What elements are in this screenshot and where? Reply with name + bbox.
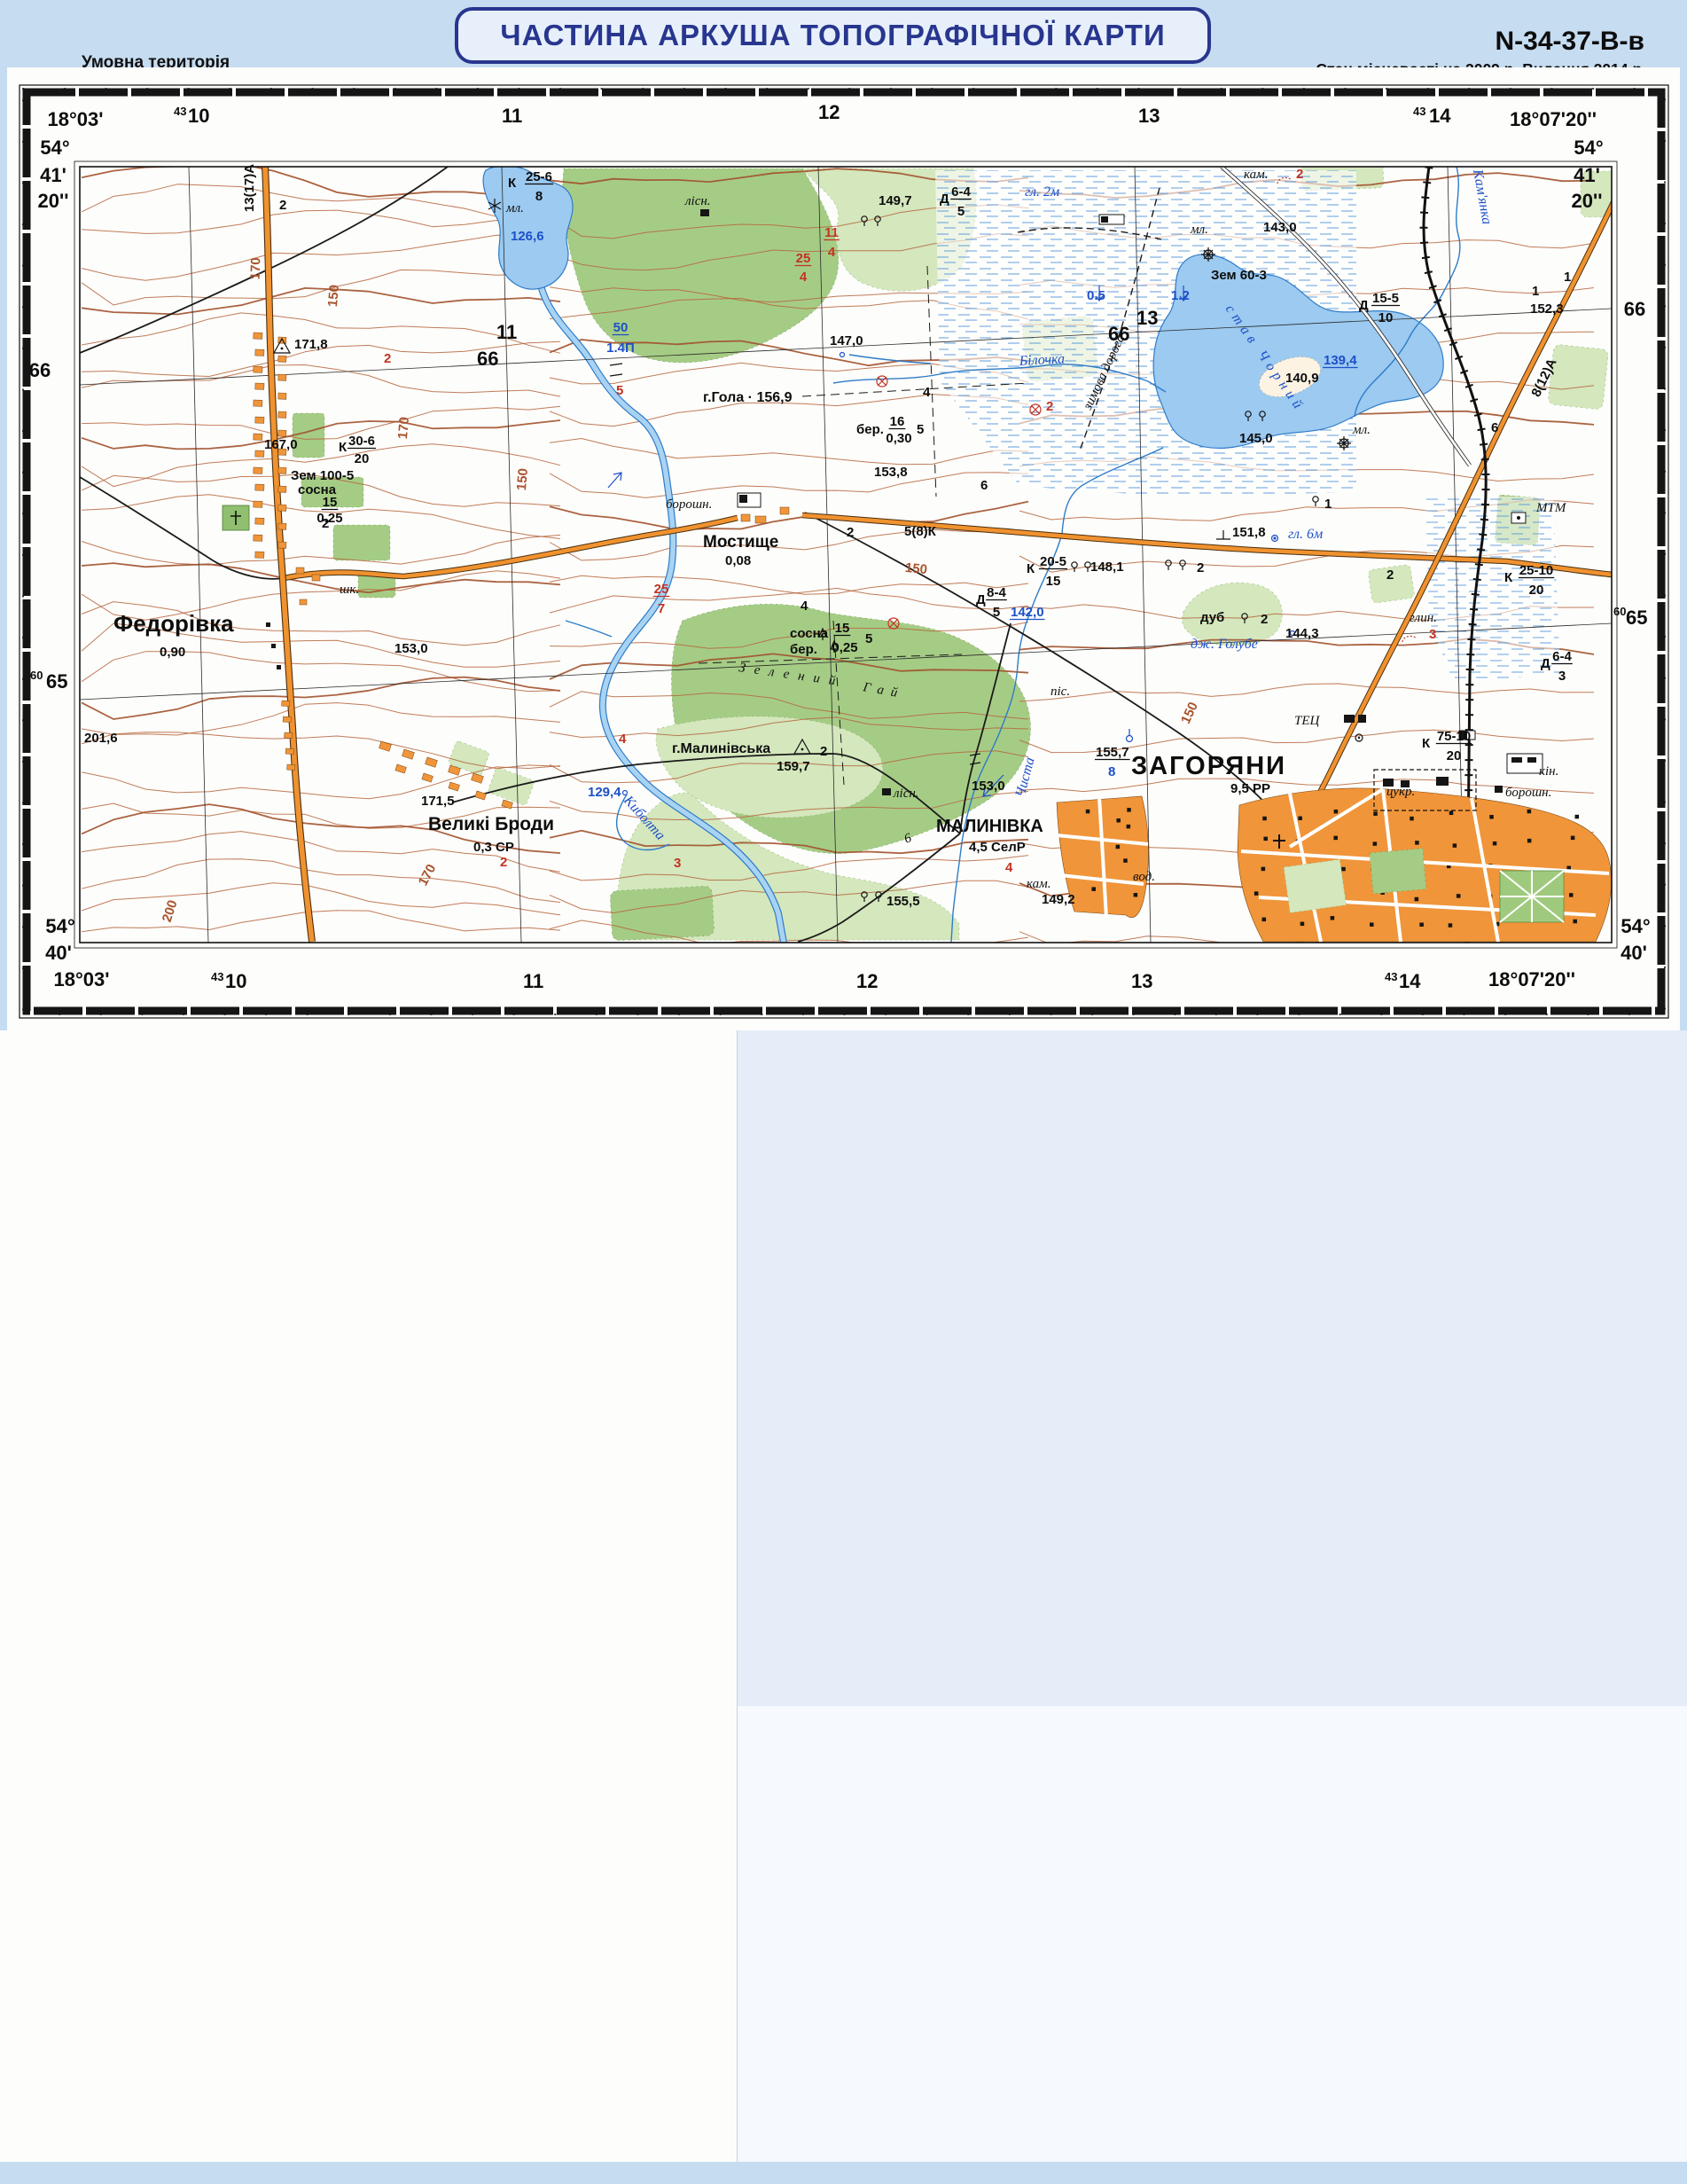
map-label: гл. 2м <box>1025 184 1059 200</box>
map-label: К <box>339 440 348 455</box>
building <box>1333 836 1338 841</box>
topographic-map-sheet: 18°03'54°41'20''18°07'20''54°41'20''6660… <box>0 0 1687 1037</box>
map-label: 0,3 СР <box>473 840 514 855</box>
stable <box>1507 754 1543 773</box>
map-label: 15 <box>1046 574 1061 589</box>
building <box>1410 817 1414 821</box>
map-label: вод. <box>1133 870 1155 884</box>
building <box>255 349 264 356</box>
map-label: 2 <box>500 855 507 870</box>
map-label: 1.4П <box>606 341 635 356</box>
map-label: 0,25 <box>832 640 857 655</box>
building <box>282 701 290 707</box>
map-label: 153,8 <box>874 465 908 480</box>
building <box>1091 887 1096 891</box>
map-label: 126,6 <box>511 229 544 244</box>
building <box>1569 893 1574 897</box>
map-label: 25 <box>654 582 669 597</box>
corner-longitude-top-left: 18°03' <box>48 108 104 130</box>
map-label: 139,4 <box>1324 353 1357 368</box>
map-label: 4 <box>828 245 836 260</box>
map-label: борошн. <box>666 497 712 512</box>
map-label: 20-5 <box>1040 554 1066 569</box>
corner-latitude-bottom-left: 54° <box>45 915 74 937</box>
grid-row-left-60: 60 <box>30 669 43 682</box>
building <box>1373 811 1378 816</box>
map-label: 30-6 <box>348 434 375 449</box>
building <box>1493 842 1497 846</box>
building <box>255 484 264 490</box>
map-label: 5 <box>616 383 623 398</box>
height-point: 171,8 <box>294 337 328 352</box>
map-label: 5 <box>865 631 872 646</box>
contour-label: 170 <box>248 257 264 280</box>
contour-label: 170 <box>395 416 412 439</box>
building <box>1341 867 1346 872</box>
grid-col-bottom-10: 10 <box>225 970 246 992</box>
river-name-bilochka: Білочка <box>1018 351 1065 369</box>
building <box>278 374 286 380</box>
map-label: 0,08 <box>725 553 751 568</box>
corner-latitude-top-right: 54° <box>1574 137 1603 159</box>
map-label: 4,5 СелР <box>969 840 1026 855</box>
map-label: шк. <box>340 583 359 597</box>
map-label: бер. <box>790 642 817 657</box>
corner-longitude-top-right: 18°07'20'' <box>1510 108 1597 130</box>
map-label: 3 <box>1558 669 1566 684</box>
map-label: 50 <box>613 320 629 335</box>
building <box>285 748 293 755</box>
map-label: 2 <box>279 198 286 213</box>
map-label: 25-6 <box>526 169 552 184</box>
map-label: 40' <box>1621 942 1647 964</box>
grid-col-bottom-13: 13 <box>1131 970 1152 992</box>
building <box>1489 815 1494 819</box>
building <box>1370 922 1374 927</box>
map-label: 0,90 <box>160 645 185 660</box>
road-number: 13(17)А <box>242 164 257 212</box>
building <box>1373 842 1378 846</box>
map-label: 8 <box>1108 764 1115 779</box>
building <box>254 434 262 440</box>
map-label: 5 <box>917 422 924 437</box>
map-label: Зем 100-5 <box>291 468 354 483</box>
corner-longitude-bottom-left: 18°03' <box>54 968 110 990</box>
map-label: 144,3 <box>1285 626 1319 641</box>
map-label: 25 <box>796 251 811 266</box>
building <box>1457 894 1461 898</box>
map-label: 40' <box>45 942 72 964</box>
building <box>1571 836 1575 841</box>
map-label: 2 <box>1197 560 1204 575</box>
village-name-mostysche: Мостище <box>703 533 778 552</box>
spring-name-holube: дж. Голубе <box>1191 637 1258 652</box>
building <box>278 430 286 436</box>
map-label: К <box>1422 736 1431 751</box>
map-label: Д <box>976 592 986 607</box>
building <box>1573 920 1577 924</box>
building <box>278 467 286 474</box>
map-label: 6 <box>980 478 988 493</box>
map-label: дуб <box>1200 610 1224 625</box>
map-label: 43 <box>211 970 223 983</box>
building <box>254 366 262 372</box>
grid-col-bottom-12: 12 <box>856 970 878 992</box>
building <box>278 393 286 399</box>
building <box>312 575 320 581</box>
building <box>1099 215 1124 224</box>
map-label: 2 <box>847 525 854 540</box>
building <box>277 665 281 669</box>
forester-building <box>882 788 891 795</box>
mtm-building <box>1511 513 1526 523</box>
map-label: 147,0 <box>830 333 863 348</box>
map-label: 15-5 <box>1372 291 1399 306</box>
map-label: 148,1 <box>1090 560 1124 575</box>
building <box>278 356 286 362</box>
map-label: 1.2 <box>1171 288 1190 303</box>
building <box>1298 817 1302 821</box>
building <box>283 716 291 723</box>
building <box>278 542 286 548</box>
map-label: 167,0 <box>264 437 298 452</box>
map-label: Д <box>940 192 949 207</box>
map-label: 143,0 <box>1263 220 1297 235</box>
map-label: 5 <box>993 605 1000 620</box>
map-label: К <box>1504 570 1513 585</box>
building <box>1254 891 1259 896</box>
map-label: 6 <box>1491 420 1498 435</box>
map-label: 142,0 <box>1011 605 1044 620</box>
building <box>278 505 286 511</box>
dam-label: Зем 60-3 <box>1211 268 1267 283</box>
map-label: 2 <box>1386 568 1394 583</box>
map-label: кін. <box>1539 764 1558 779</box>
grid-col-top-14: 14 <box>1429 105 1451 127</box>
building <box>254 400 262 406</box>
building <box>255 383 264 389</box>
building <box>300 599 307 605</box>
map-label: 149,7 <box>879 193 912 208</box>
map-label: 16 <box>890 414 905 429</box>
map-label: 6-4 <box>951 184 971 200</box>
map-label: 151,8 <box>1232 525 1266 540</box>
map-label: 41' <box>40 164 66 186</box>
map-label: Д <box>1359 298 1369 313</box>
corner-latitude-bottom-right: 54° <box>1621 915 1650 937</box>
contour-label: 150 <box>325 284 342 307</box>
building <box>278 486 286 492</box>
map-label: 75-10 <box>1437 729 1471 744</box>
grid-col-top-12: 12 <box>818 101 840 123</box>
map-label: 2 <box>384 351 391 366</box>
village-name-velyki-brody: Великі Броди <box>428 814 554 834</box>
building <box>1527 810 1532 814</box>
grid-inside-13: 13 <box>1136 307 1158 329</box>
map-label: 7 <box>658 601 665 616</box>
building <box>285 732 293 739</box>
building <box>254 501 262 507</box>
map-label: 20'' <box>38 190 69 212</box>
map-label: 41' <box>1574 164 1600 186</box>
building <box>1449 811 1454 816</box>
map-label: сосна <box>790 626 829 641</box>
grid-col-top-10: 10 <box>188 105 209 127</box>
building <box>254 333 262 339</box>
map-label: борошн. <box>1505 786 1551 800</box>
map-sheet-svg: 18°03'54°41'20''18°07'20''54°41'20''6660… <box>0 0 1687 1037</box>
empty-page-area-right <box>738 1030 1687 1706</box>
corner-latitude-top-left: 54° <box>40 137 69 159</box>
map-label: бер. <box>856 422 884 437</box>
building <box>255 552 264 558</box>
map-label: 43 <box>1385 970 1397 983</box>
map-label: МТМ <box>1535 501 1567 515</box>
map-label: ТЕЦ <box>1294 714 1321 728</box>
building <box>1263 837 1268 842</box>
map-label: 149,2 <box>1042 892 1075 907</box>
map-label: 15 <box>835 621 850 636</box>
map-label: 145,0 <box>1239 431 1273 446</box>
grid-inside-11: 11 <box>496 321 517 343</box>
map-label: 171,5 <box>421 794 455 809</box>
building <box>1116 818 1121 823</box>
building <box>255 518 264 524</box>
town-name-malynivka: МАЛИНІВКА <box>936 817 1043 836</box>
map-label: К <box>508 176 517 191</box>
map-label: 60 <box>1613 605 1626 618</box>
map-label: 1 <box>1564 270 1571 285</box>
map-label: 4 <box>923 385 931 400</box>
map-label: Д <box>1541 656 1550 671</box>
map-label: 15 <box>323 495 338 510</box>
map-label: 3 <box>674 856 681 871</box>
building <box>255 417 264 423</box>
map-label: 2 <box>1261 612 1268 627</box>
map-label: кам. <box>1027 877 1050 891</box>
building <box>1127 825 1131 829</box>
map-label: 4 <box>1005 860 1013 875</box>
map-label: 43 <box>1413 105 1425 118</box>
building <box>1415 897 1419 902</box>
map-label: 3 <box>1429 627 1436 642</box>
map-label: 6-4 <box>1552 649 1572 664</box>
building <box>1123 858 1128 863</box>
town-name-zahoriany: ЗАГОРЯНИ <box>1131 752 1286 780</box>
building <box>1262 817 1267 821</box>
building <box>1262 918 1267 922</box>
height-point: 201,6 <box>84 731 118 746</box>
map-label: 155,7 <box>1096 745 1129 760</box>
map-label: мл. <box>1190 223 1208 237</box>
building <box>1575 815 1580 819</box>
map-label: 1 <box>1532 284 1539 299</box>
building <box>1134 893 1138 897</box>
grid-col-top-13: 13 <box>1138 105 1160 127</box>
map-label: 129,4 <box>588 785 621 800</box>
building <box>1419 922 1424 927</box>
town-park <box>1500 871 1564 922</box>
building <box>271 644 276 648</box>
grid-row-left-65: 65 <box>46 670 67 693</box>
building <box>1449 923 1453 928</box>
scanned-atlas-page: Умовна територія ЧАСТИНА АРКУША ТОПОГРАФ… <box>0 0 1687 2184</box>
map-label: К <box>1027 561 1035 576</box>
grid-col-bottom-14: 14 <box>1399 970 1421 992</box>
contour-label: 150 <box>514 467 531 490</box>
grid-row-left-66: 66 <box>29 359 51 381</box>
village-name-fedorivka: Федорівка <box>113 610 234 637</box>
map-label: 0,30 <box>886 431 911 446</box>
grid-row-right-66: 66 <box>1624 298 1645 320</box>
grid-inside-66: 66 <box>477 348 498 370</box>
building <box>1127 808 1131 812</box>
building <box>296 568 304 574</box>
building <box>278 523 286 529</box>
map-label: 0,25 <box>316 511 342 526</box>
map-label: мл. <box>1352 423 1371 437</box>
grid-row-right-65: 65 <box>1626 607 1647 629</box>
corner-longitude-bottom-right: 18°07'20'' <box>1488 968 1575 990</box>
map-label: 2 <box>820 744 827 759</box>
map-label: 11 <box>824 225 839 240</box>
building <box>255 450 264 457</box>
cemetery <box>223 505 249 530</box>
building <box>287 764 295 771</box>
building <box>1334 810 1339 814</box>
map-label: 20 <box>355 451 370 466</box>
map-label: 155,5 <box>886 894 920 909</box>
map-label: 5 <box>957 204 965 219</box>
building <box>1331 916 1335 920</box>
map-label: лісн. <box>684 194 711 208</box>
road-number: 5(8)К <box>904 524 937 539</box>
map-label: 152,3 <box>1530 301 1564 317</box>
map-label: 159,7 <box>777 759 810 774</box>
map-label: гл. 6м <box>1288 527 1323 542</box>
map-label: 153,0 <box>394 641 428 656</box>
map-label: 20 <box>1447 748 1462 763</box>
building <box>1086 810 1090 814</box>
map-label: цукр. <box>1386 785 1415 799</box>
building <box>254 535 262 541</box>
hill-name-hola: г.Гола · 156,9 <box>703 390 793 405</box>
map-label: 4 <box>801 599 808 614</box>
map-label: 20'' <box>1572 190 1603 212</box>
building <box>1415 841 1419 845</box>
page-bottom-strip <box>0 2162 1687 2184</box>
mill-building <box>1495 786 1503 793</box>
building <box>266 622 270 627</box>
map-label: піс. <box>1050 685 1070 699</box>
building <box>1261 867 1266 872</box>
contour-label: 150 <box>904 560 928 578</box>
map-label: 2 <box>1296 167 1303 182</box>
map-label: 43 <box>174 105 186 118</box>
empty-page-area-lower <box>738 1706 1687 2162</box>
map-label: 4 <box>800 270 808 285</box>
map-label: 25-10 <box>1519 563 1553 578</box>
map-label: глин. <box>1410 611 1437 625</box>
map-label: 0.5 <box>1087 288 1105 303</box>
grid-col-bottom-11: 11 <box>523 970 543 992</box>
map-label: 8-4 <box>987 585 1006 600</box>
map-label: 4 <box>619 732 627 747</box>
building <box>1453 843 1457 848</box>
forester-building <box>700 209 709 216</box>
map-label: 20 <box>1529 583 1544 598</box>
map-label: 2 <box>322 516 329 531</box>
empty-page-area-left <box>0 1030 738 2162</box>
building <box>1116 845 1121 849</box>
building <box>1527 839 1532 843</box>
map-label: 1 <box>1324 497 1332 512</box>
map-label: 9,5 РР <box>1230 781 1270 796</box>
building <box>254 467 262 474</box>
grid-col-top-11: 11 <box>502 105 522 127</box>
map-label: 10 <box>1378 310 1394 325</box>
map-label: кам. <box>1244 168 1268 182</box>
map-label: мл. <box>505 201 524 215</box>
building <box>278 411 286 418</box>
map-label: 153,0 <box>972 779 1005 794</box>
map-label: 8 <box>535 189 543 204</box>
hill-name-malynivska: г.Малинівська <box>672 741 770 756</box>
map-label: 2 <box>1046 399 1053 414</box>
map-label: лісн. <box>893 787 919 801</box>
building <box>1300 922 1305 927</box>
